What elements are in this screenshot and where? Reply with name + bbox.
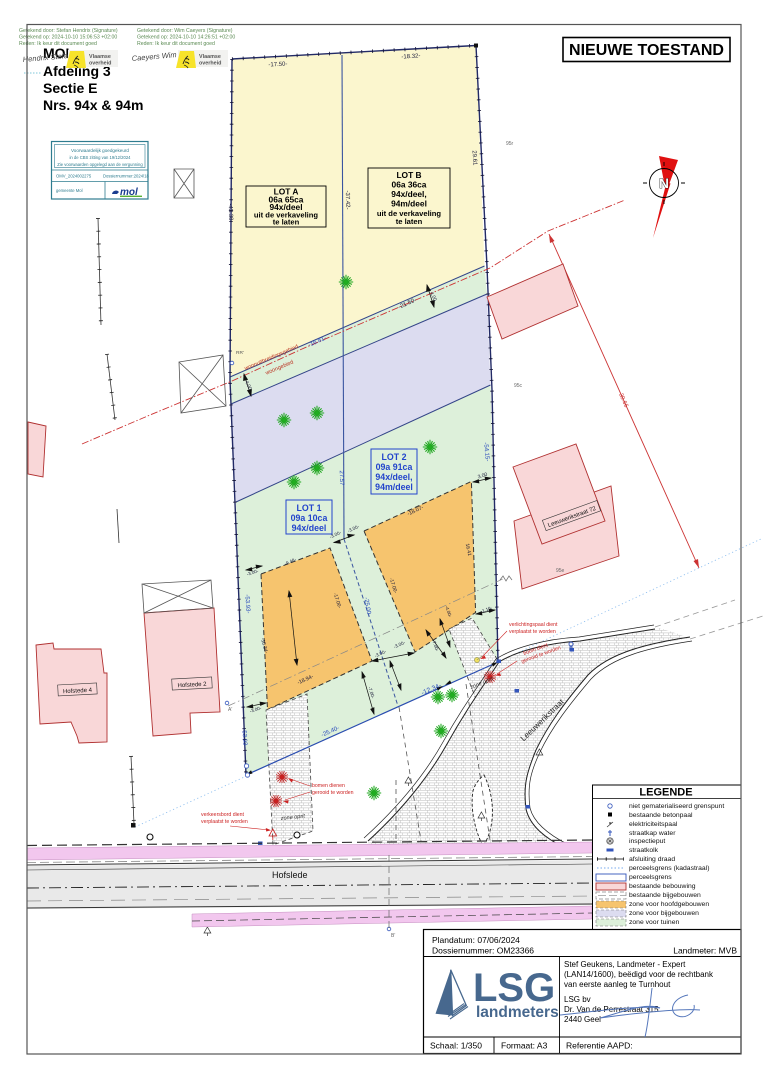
svg-text:Zie voorwaarden opgelegd aan d: Zie voorwaarden opgelegd aan de vergunni… [57,162,143,167]
svg-text:bestaande bebouwing: bestaande bebouwing [629,883,696,890]
svg-text:straatkap water: straatkap water [629,830,676,837]
svg-text:B': B' [391,933,395,939]
svg-text:zone voor tuinen: zone voor tuinen [629,919,679,926]
svg-text:Formaat: A3: Formaat: A3 [501,1041,548,1051]
svg-text:Vlaamse: Vlaamse [89,54,111,60]
svg-text:09a 10ca: 09a 10ca [291,513,328,523]
svg-text:94m/deel: 94m/deel [375,482,413,492]
svg-text:Plandatum: 07/06/2024: Plandatum: 07/06/2024 [432,935,520,945]
svg-text:06a 36ca: 06a 36ca [392,180,427,190]
svg-text:te laten: te laten [273,218,300,227]
svg-text:landmeters: landmeters [476,1004,559,1021]
svg-text:OMV_2024002275: OMV_2024002275 [56,174,92,179]
svg-text:Vlaamse: Vlaamse [199,54,221,60]
svg-text:perceelsgrens: perceelsgrens [629,874,672,881]
svg-text:Getekend op: 2024-10-10 15:06:: Getekend op: 2024-10-10 15:06:53 +02:00 [19,35,117,41]
svg-text:94x/deel: 94x/deel [292,523,327,533]
svg-text:Stef Geukens, Landmeter - Expe: Stef Geukens, Landmeter - Expert [564,960,686,969]
svg-text:RR': RR' [236,350,244,356]
svg-text:LOT B: LOT B [396,170,421,180]
svg-text:overheid: overheid [89,61,111,67]
svg-text:gerooid te worden: gerooid te worden [312,790,354,796]
svg-text:gemeente Mol: gemeente Mol [56,188,83,193]
svg-text:verplaatst te worden: verplaatst te worden [201,819,248,825]
svg-text:straatkolk: straatkolk [629,847,659,854]
svg-text:Getekend op: 2024-10-10 14:26:: Getekend op: 2024-10-10 14:26:51 +02:00 [137,35,235,41]
svg-text:Getekend door: Wim Caeyers (Si: Getekend door: Wim Caeyers (Signature) [137,28,233,34]
svg-text:verplaatst te worden: verplaatst te worden [509,629,556,635]
svg-text:van eerste aanleg te Turnhout: van eerste aanleg te Turnhout [564,980,671,989]
svg-text:inspectieput: inspectieput [629,838,665,845]
svg-text:Schaal: 1/350: Schaal: 1/350 [430,1041,482,1051]
svg-text:perceelsgrens (kadastraal): perceelsgrens (kadastraal) [629,865,709,872]
svg-text:09a 91ca: 09a 91ca [376,462,413,472]
svg-text:overheid: overheid [199,61,221,67]
svg-text:A': A' [228,707,232,713]
svg-text:Dossiernummer:2024/18: Dossiernummer:2024/18 [103,174,150,179]
svg-text:-17.50-: -17.50- [268,62,287,69]
svg-text:N: N [659,176,669,191]
svg-text:Referentie AAPD:: Referentie AAPD: [566,1041,633,1051]
svg-text:95e: 95e [556,568,565,574]
svg-text:afsluiting draad: afsluiting draad [629,856,675,863]
svg-text:2440 Geel: 2440 Geel [564,1015,601,1024]
svg-text:94x/deel,: 94x/deel, [391,189,426,199]
svg-text:Landmeter: MVB: Landmeter: MVB [673,946,737,956]
svg-text:verkeersbord dient: verkeersbord dient [201,812,245,818]
svg-text:95r: 95r [506,141,514,147]
svg-text:94m/deel: 94m/deel [391,199,427,209]
svg-text:te laten: te laten [396,217,423,226]
svg-text:bestaande betonpaal: bestaande betonpaal [629,812,693,819]
svg-text:bestaande bijgebouwen: bestaande bijgebouwen [629,892,701,899]
svg-text:Sectie E: Sectie E [43,80,97,96]
svg-text:bomen dienen: bomen dienen [312,783,345,789]
svg-text:Reden: Ik keur dit document go: Reden: Ik keur dit document goed [137,41,215,47]
svg-text:NIEUWE TOESTAND: NIEUWE TOESTAND [569,42,724,59]
svg-text:(LAN14/1600), beëdigd voor de: (LAN14/1600), beëdigd voor de rechtbank [564,970,714,979]
svg-text:-37.42-: -37.42- [344,190,350,209]
svg-text:Getekend door: Stefan Hendrix: Getekend door: Stefan Hendrix (Signature… [19,28,118,34]
svg-text:-43.38-: -43.38- [227,203,234,222]
svg-text:29.61: 29.61 [470,150,477,166]
svg-text:Voorwaardelijk goedgekeurd: Voorwaardelijk goedgekeurd [71,148,129,153]
svg-text:LEGENDE: LEGENDE [639,787,692,799]
svg-text:zone voor bijgebouwen: zone voor bijgebouwen [629,910,699,917]
svg-text:Dossiernummer: OM23366: Dossiernummer: OM23366 [432,946,534,956]
svg-text:Hofslede: Hofslede [272,870,308,880]
svg-text:27.57: 27.57 [338,470,345,486]
svg-text:elektriciteitspaal: elektriciteitspaal [629,821,678,828]
svg-text:in de CBS zitting van 19/12/2: in de CBS zitting van 19/12/2024 [70,155,132,160]
svg-text:Nrs. 94x & 94m: Nrs. 94x & 94m [43,97,143,113]
svg-text:niet gematerialiseerd grenspun: niet gematerialiseerd grenspunt [629,803,724,810]
svg-text:LSG bv: LSG bv [564,995,591,1004]
svg-text:95c: 95c [514,383,523,389]
svg-text:LOT 1: LOT 1 [297,503,322,513]
svg-text:zone voor hoofdgebouwen: zone voor hoofdgebouwen [629,901,709,908]
svg-text:verlichtingspaal dient: verlichtingspaal dient [509,622,558,628]
svg-text:LOT 2: LOT 2 [382,452,407,462]
svg-text:94x/deel,: 94x/deel, [375,472,412,482]
